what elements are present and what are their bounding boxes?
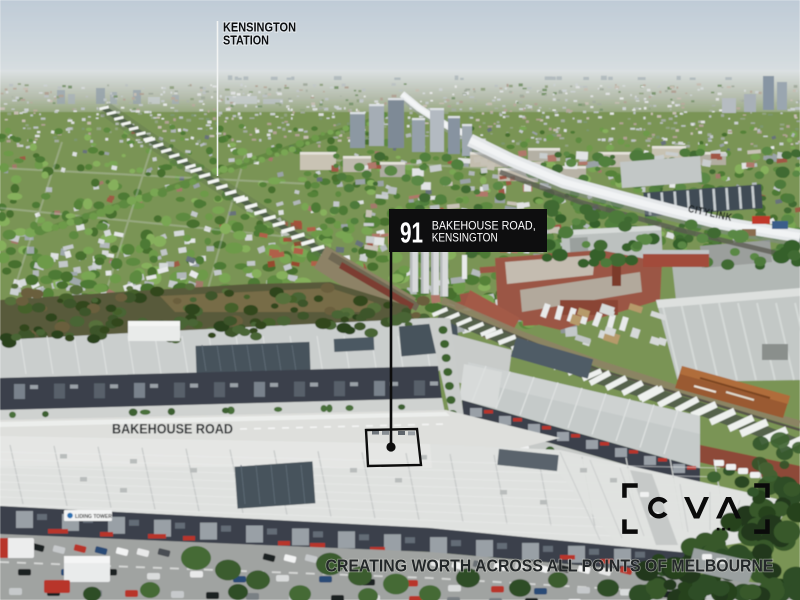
svg-text:CREATING WORTH ACROSS ALL POIN: CREATING WORTH ACROSS ALL POINTS OF MELB… [326,556,774,576]
svg-text:LIDING TOWER: LIDING TOWER [75,514,112,520]
svg-text:BAKEHOUSE ROAD: BAKEHOUSE ROAD [112,422,233,437]
svg-text:BAKEHOUSE ROAD,: BAKEHOUSE ROAD, [432,221,536,233]
svg-text:STATION: STATION [223,33,269,48]
svg-text:KENSINGTON: KENSINGTON [432,232,498,244]
svg-text:91: 91 [400,218,423,250]
